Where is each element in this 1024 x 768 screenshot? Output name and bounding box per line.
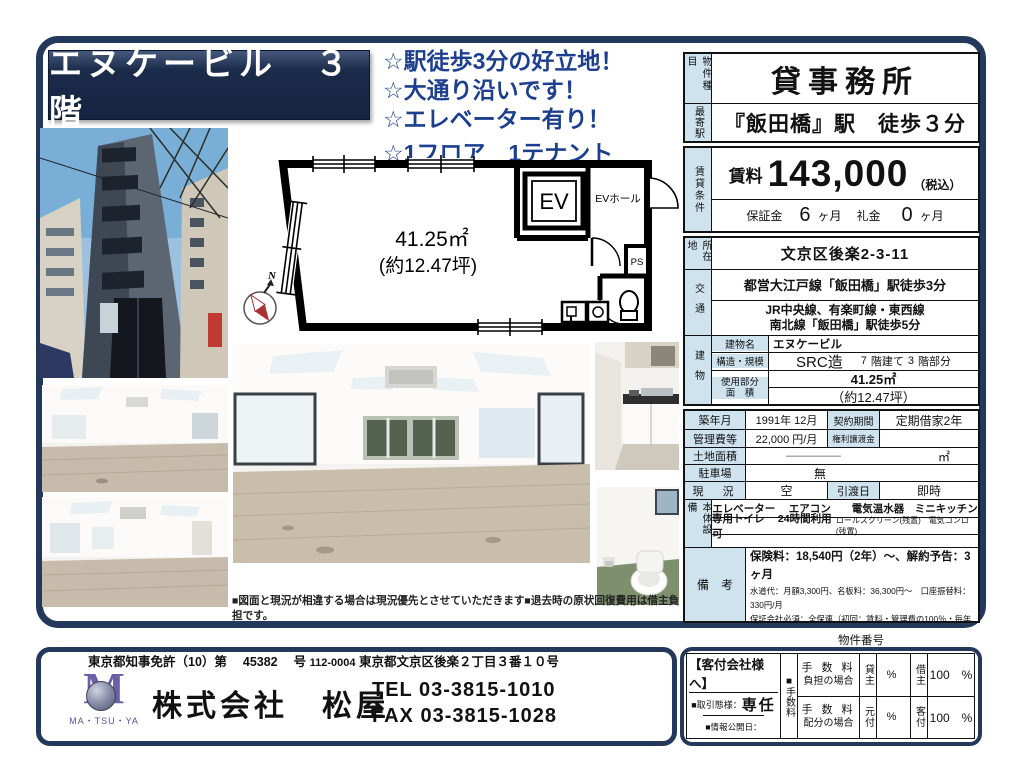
structure-value: SRC造 [796, 351, 843, 372]
spec-table: 物件種目 貸事務所 最寄駅 『飯田橋』駅 徒歩３分 賃貸条件 賃料 143,00… [683, 52, 980, 626]
company-logo: M MA・TSU・YA [58, 667, 150, 733]
contract-value: 定期借家2年 [879, 411, 978, 429]
agent-grid: 【客付会社様へ】 ■取引態様： 専任 ■情報公開日： ■ 手数料 手 数 料 負… [687, 654, 975, 739]
note-line: 保険料：18,540円（2年）～、解約予告：3ヶ月 [750, 548, 974, 584]
parking-value: 無 [745, 465, 978, 481]
tenant-percent: 100 % [927, 653, 975, 697]
compass-north-label: N [267, 270, 277, 282]
office-illustration-1 [42, 385, 228, 492]
contract-label: 契約期間 [827, 411, 879, 429]
toilet-illustration [597, 487, 679, 605]
status-value: 空 [745, 482, 827, 499]
landlord-percent: % [876, 653, 911, 697]
floor-number: 3 [908, 355, 914, 367]
rent-label: 賃料 [729, 162, 763, 187]
property-number-label: 物件番号 [838, 632, 884, 648]
office-illustration-main [233, 344, 590, 563]
highlight-item: ☆駅徒歩3分の好立地！ [383, 47, 683, 76]
rent-value: 143,000 [768, 153, 909, 195]
tel-number: TEL 03-3815-1010 [372, 677, 557, 703]
toilet-photo [597, 487, 679, 605]
building-exterior-photo [40, 128, 228, 378]
telfax-block: TEL 03-3815-1010 FAX 03-3815-1028 [372, 677, 557, 729]
rent-tax-note: （税込） [913, 176, 961, 193]
fee-vertical-bullet: ■ [786, 676, 792, 687]
building-name-value: エヌケービル [768, 336, 978, 352]
structure-label: 構造・規模 [712, 354, 768, 368]
terms-header: 賃貸条件 [685, 148, 711, 231]
used-area-value: 41.25㎡ [769, 370, 978, 387]
fee-split-l2: 配分の場合 [804, 717, 854, 730]
structure-row: 構造・規模 SRC造 7 階建て 3 階部分 [712, 352, 978, 370]
mgmt-fee-label: 管理費等 [685, 430, 745, 447]
address-header: 所在地 [685, 238, 711, 269]
company-address: 東京都文京区後楽２丁目３番１０号 [359, 655, 559, 669]
note-line: 保証会社必須：全保連（初回：賃料・管理費の100％・毎年10％） [750, 612, 974, 622]
building-header: 建物 [685, 336, 711, 404]
notes-header: 備 考 [685, 548, 745, 621]
office-photo-main [233, 344, 590, 563]
property-type-header: 物件種目 [685, 54, 711, 103]
used-area-tsubo: （約12.47坪） [769, 387, 978, 404]
station-value: 『飯田橋』駅 徒歩３分 [711, 104, 978, 141]
land-area-value-cell: ――――― ㎡ [745, 448, 978, 464]
ev-hall-label: EVホール [595, 193, 641, 205]
deal-type-row: ■取引態様： 専任 [689, 692, 777, 715]
building-title: エヌケービル ３階 [49, 37, 369, 133]
fee-burden-label: 手 数 料 負担の場合 [797, 653, 860, 697]
compass-icon: N [244, 270, 277, 325]
spec-box-top: 物件種目 貸事務所 最寄駅 『飯田橋』駅 徒歩３分 [683, 52, 980, 143]
rent-row: 賃料 143,000 （税込） [712, 149, 978, 199]
kyakuzuke-label: 客付 [910, 696, 928, 740]
deposit-row: 保証金 6 ヶ月 礼金 0 ヶ月 [712, 199, 978, 230]
land-area-value: ――――― [786, 450, 841, 462]
note-line: 水道代：月額3,300円、名板料：36,300円～ 口座振替料：330円/月 [750, 584, 974, 612]
land-area-label: 土地面積 [685, 448, 745, 464]
floor-plan: EV EVホール PS 41.25㎡ (約12.47坪) [240, 150, 683, 350]
rights-label: 権利譲渡金 [827, 430, 879, 447]
access-line-1: 都営大江戸線「飯田橋」駅徒歩3分 [712, 270, 978, 300]
highlight-item: ☆大通り沿いです！ [383, 76, 683, 105]
key-money-value: 0 [902, 204, 913, 227]
fee-burden-l2: 負担の場合 [804, 675, 854, 688]
fee-vertical-header: ■ 手数料 [780, 653, 798, 739]
property-type-value: 貸事務所 [711, 54, 978, 103]
landlord-label: 貸主 [859, 653, 877, 697]
motozuke-label: 元付 [859, 696, 877, 740]
deposit-value: 6 [799, 204, 810, 227]
building-name-row: 建物名 エヌケービル [712, 336, 978, 352]
tenant-label: 借主 [910, 653, 928, 697]
office-photo-1 [42, 385, 228, 492]
disclaimer-text: ■図面と現況が相違する場合は現況優先とさせていただきます■退去時の原状回復費用は… [232, 593, 684, 623]
plan-tsubo-label: (約12.47坪) [379, 255, 477, 277]
status-label: 現 況 [685, 482, 745, 499]
fee-vertical-text: 手数料 [784, 687, 795, 717]
spec-box-terms: 賃貸条件 賃料 143,000 （税込） 保証金 6 ヶ月 礼金 0 ヶ月 [683, 146, 980, 233]
agent-box: 【客付会社様へ】 ■取引態様： 専任 ■情報公開日： ■ 手数料 手 数 料 負… [680, 647, 982, 746]
handover-value: 即時 [879, 482, 978, 499]
used-area-label-2: 面 積 [726, 388, 755, 399]
license-line: 東京都知事免許（10）第 45382 号 112-0004 東京都文京区後楽２丁… [88, 651, 648, 670]
to-agents-label: 【客付会社様へ】 [687, 654, 780, 692]
highlight-item: ☆エレベーター有り！ [383, 105, 683, 134]
company-name: 株式会社 松屋 [152, 681, 390, 725]
access-line-2a: JR中央線、有楽町線・東西線 [765, 303, 924, 318]
matsuya-logo-mark: M [78, 667, 130, 711]
deal-type-value: 専任 [742, 694, 776, 715]
key-money-label: 礼金 [857, 207, 881, 224]
built-label: 築年月 [685, 411, 745, 429]
ev-label: EV [539, 189, 569, 214]
fee-split-label: 手 数 料 配分の場合 [797, 696, 860, 740]
access-line-2: JR中央線、有楽町線・東西線 南北線「飯田橋」駅徒歩5分 [712, 300, 978, 335]
access-line-2b: 南北線「飯田橋」駅徒歩5分 [770, 318, 921, 333]
address-value: 文京区後楽2-3-11 [711, 238, 978, 269]
land-area-unit: ㎡ [938, 448, 950, 464]
used-area-row: 使用部分 面 積 41.25㎡ （約12.47坪） [712, 370, 978, 405]
notes-cell: 再契約料：新賃料1ヶ月分（再契約時） 保険料：18,540円（2年）～、解約予告… [745, 548, 978, 621]
kitchen-illustration [595, 342, 679, 470]
logo-sphere [86, 681, 116, 711]
equipment-line-3 [712, 534, 978, 547]
floor-suffix: 階部分 [918, 353, 951, 369]
parking-label: 駐車場 [685, 465, 745, 481]
agent-left-block: 【客付会社様へ】 ■取引態様： 専任 ■情報公開日： [686, 653, 781, 739]
station-header: 最寄駅 [685, 104, 711, 141]
building-name-label: 建物名 [712, 336, 768, 351]
deposit-unit: ヶ月 [817, 207, 841, 224]
plan-area-label: 41.25㎡ [395, 227, 469, 251]
flyer-page: エヌケービル ３階 ☆駅徒歩3分の好立地！ ☆大通り沿いです！ ☆エレベーター有… [0, 0, 1024, 768]
equipment-header: 本体設備 [685, 500, 711, 547]
equipment-line-2: 専用トイレ 24時間利用可 ロールスクリーン(残置) 電気コンロ(残置) [712, 517, 978, 534]
postal-code: 112-0004 [310, 657, 356, 669]
building-title-box: エヌケービル ３階 [48, 50, 370, 120]
spec-box-details: 築年月 1991年 12月 契約期間 定期借家2年 管理費等 22,000 円/… [683, 409, 980, 623]
floor-plan-drawing: EV EVホール PS 41.25㎡ (約12.47坪) [240, 150, 683, 350]
floors-suffix: 階建て [871, 353, 904, 369]
kyakuzuke-percent: 100 % [927, 696, 975, 740]
office-photo-2 [42, 497, 228, 607]
deal-type-label: ■取引態様： [691, 698, 741, 711]
office-illustration-2 [42, 497, 228, 607]
building-exterior-illustration [40, 128, 228, 378]
built-value: 1991年 12月 [745, 411, 827, 429]
logo-text: MA・TSU・YA [58, 714, 150, 727]
motozuke-percent: % [876, 696, 911, 740]
deposit-label: 保証金 [746, 207, 782, 224]
fax-number: FAX 03-3815-1028 [372, 703, 557, 729]
publish-date-label: ■情報公開日： [703, 715, 763, 738]
spec-box-location: 所在地 文京区後楽2-3-11 交通 都営大江戸線「飯田橋」駅徒歩3分 JR中央… [683, 236, 980, 406]
mgmt-fee-value: 22,000 円/月 [745, 430, 827, 447]
structure-value-row: SRC造 7 階建て 3 階部分 [768, 351, 978, 372]
fee-split-l1: 手 数 料 [801, 704, 855, 717]
ps-label: PS [631, 257, 644, 268]
used-area-label: 使用部分 面 積 [712, 377, 768, 399]
floors-count: 7 [861, 355, 867, 367]
kitchen-photo [595, 342, 679, 470]
rights-value [879, 430, 978, 447]
access-header: 交通 [685, 270, 711, 335]
handover-label: 引渡日 [827, 482, 879, 499]
fee-burden-l1: 手 数 料 [801, 662, 855, 675]
used-area-label-1: 使用部分 [721, 377, 759, 388]
key-money-unit: ヶ月 [920, 207, 944, 224]
